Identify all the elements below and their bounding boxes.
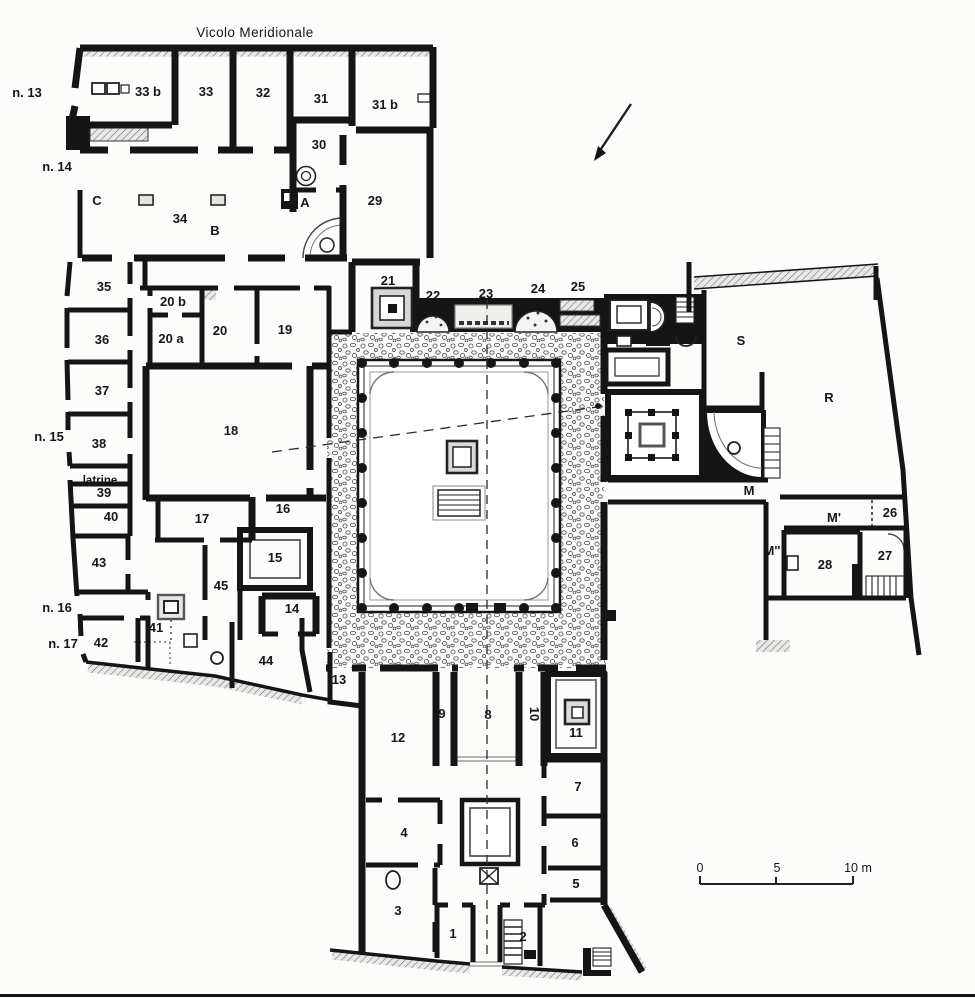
label-room-31b: 31 b	[372, 97, 398, 112]
label-room-12: 12	[391, 730, 405, 745]
label-room-M2: M''	[763, 543, 780, 558]
label-room-30: 30	[312, 137, 326, 152]
label-room-36: 36	[95, 332, 109, 347]
scale-bar	[700, 876, 853, 884]
label-room-40: 40	[104, 509, 118, 524]
label-room-21: 21	[381, 273, 395, 288]
label-room-34: 34	[173, 211, 188, 226]
label-room-35: 35	[97, 279, 111, 294]
label-room-20a: 20 a	[158, 331, 184, 346]
garden-steps	[433, 486, 485, 520]
label-room-R: R	[824, 390, 834, 405]
label-room-26: 26	[883, 505, 897, 520]
scale-label-10m: 10 m	[844, 861, 872, 875]
label-room-9: 9	[438, 706, 445, 721]
label-room-42: 42	[94, 635, 108, 650]
label-room-3: 3	[394, 903, 401, 918]
label-room-4: 4	[400, 825, 408, 840]
label-room-18: 18	[224, 423, 238, 438]
label-room-16: 16	[276, 501, 290, 516]
label-room-11: 11	[569, 725, 583, 740]
label-room-32: 32	[256, 85, 270, 100]
label-room-C: C	[92, 193, 102, 208]
label-room-27: 27	[878, 548, 892, 563]
label-room-1: 1	[449, 926, 456, 941]
label-room-28: 28	[818, 557, 832, 572]
label-entrance-n17: n. 17	[48, 636, 78, 651]
label-room-7: 7	[574, 779, 581, 794]
label-room-22: 22	[426, 288, 440, 303]
label-room-17: 17	[195, 511, 209, 526]
label-room-14: 14	[285, 601, 300, 616]
floor-plan-drawing: Vicolo Meridionale n. 13 n. 14 n. 15 n. …	[0, 0, 975, 998]
axis-node	[595, 403, 601, 409]
label-entrance-n13: n. 13	[12, 85, 42, 100]
label-room-43: 43	[92, 555, 106, 570]
label-room-41: 41	[149, 620, 163, 635]
label-room-29: 29	[368, 193, 382, 208]
label-room-37: 37	[95, 383, 109, 398]
label-room-44: 44	[259, 653, 274, 668]
label-room-39: 39	[97, 485, 111, 500]
label-room-M: M	[744, 483, 755, 498]
label-room-33: 33	[199, 84, 213, 99]
label-room-20b: 20 b	[160, 294, 186, 309]
label-room-5: 5	[572, 876, 579, 891]
label-room-A: A	[300, 195, 310, 210]
label-room-6: 6	[571, 835, 578, 850]
floor-plan-page: Vicolo Meridionale n. 13 n. 14 n. 15 n. …	[0, 0, 975, 998]
label-room-S: S	[737, 333, 746, 348]
label-room-20: 20	[213, 323, 227, 338]
label-room-24: 24	[531, 281, 546, 296]
label-room-45: 45	[214, 578, 228, 593]
label-entrance-n16: n. 16	[42, 600, 72, 615]
fountain-base	[447, 441, 477, 473]
label-room-38: 38	[92, 436, 106, 451]
scale-label-0: 0	[697, 861, 704, 875]
label-room-B: B	[210, 223, 219, 238]
north-arrow	[594, 104, 631, 161]
label-room-13: 13	[332, 672, 346, 687]
label-room-8: 8	[484, 707, 491, 722]
label-room-M1: M'	[827, 510, 841, 525]
street-title: Vicolo Meridionale	[196, 25, 313, 40]
label-room-33b: 33 b	[135, 84, 161, 99]
label-room-19: 19	[278, 322, 292, 337]
label-room-25: 25	[571, 279, 585, 294]
label-entrance-n15: n. 15	[34, 429, 64, 444]
label-entrance-n14: n. 14	[42, 159, 72, 174]
label-room-31: 31	[314, 91, 328, 106]
scale-label-5: 5	[774, 861, 781, 875]
label-room-2: 2	[519, 929, 526, 944]
label-room-23: 23	[479, 286, 493, 301]
label-room-15: 15	[268, 550, 282, 565]
label-room-10: 10	[527, 707, 542, 721]
